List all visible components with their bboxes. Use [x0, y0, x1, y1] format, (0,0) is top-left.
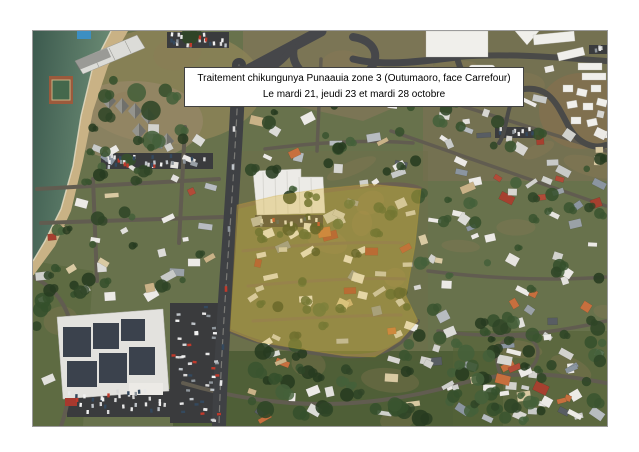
hypermarket-building	[57, 309, 169, 406]
swimming-pool	[77, 31, 91, 39]
red-container	[65, 398, 77, 406]
treatment-zone-highlight	[230, 184, 421, 357]
caption-line2: Le mardi 21, jeudi 23 et mardi 28 octobr…	[185, 87, 523, 103]
caption-line1: Traitement chikungunya Punaauia zone 3 (…	[185, 71, 523, 87]
caption-box: Traitement chikungunya Punaauia zone 3 (…	[184, 67, 524, 107]
